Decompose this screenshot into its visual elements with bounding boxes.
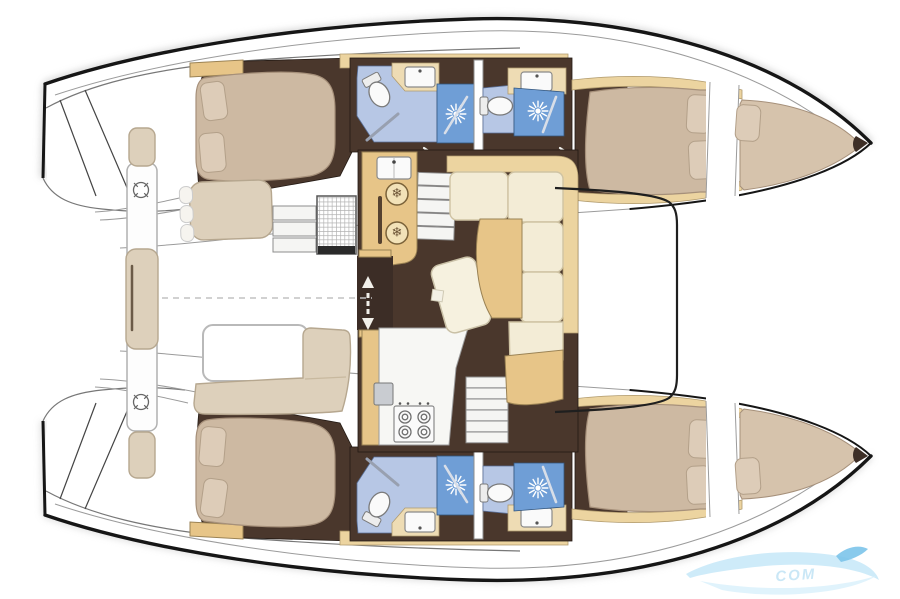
snowflake-fridge-icon: ❄ <box>392 187 403 202</box>
faucet-dot <box>535 74 538 77</box>
bench-roll-cushion <box>180 205 194 222</box>
cockpit-bench-top <box>179 180 273 242</box>
cockpit-locker-steps <box>273 206 316 252</box>
door-frame <box>359 250 391 257</box>
door-panel <box>357 256 393 330</box>
bed-pillow <box>735 104 761 142</box>
cockpit-table-white <box>203 325 308 381</box>
sliding-door <box>357 250 393 337</box>
faucet-dot <box>418 69 421 72</box>
bench-roll-cushion <box>180 224 194 241</box>
sofa-cushion <box>520 272 563 322</box>
fridge-lid: ❄ <box>386 183 408 205</box>
toilet-right <box>480 97 513 115</box>
cockpit-table-grid <box>317 196 356 254</box>
bed-pillow <box>199 81 228 122</box>
winch-icon <box>134 395 149 410</box>
faucet-dot <box>392 160 396 164</box>
snowflake-fridge-icon: ❄ <box>392 226 403 241</box>
table-grid-edge <box>318 246 355 254</box>
catamaran-floor-plan: ❄ ❄ <box>0 0 900 599</box>
winch-icon <box>134 183 149 198</box>
table-support <box>431 289 443 301</box>
helm-pad-bottom <box>129 432 155 478</box>
aft-cabin-top <box>190 58 352 196</box>
fridge-handle <box>378 196 382 244</box>
cooktop-stove <box>394 402 434 442</box>
fridge-lid: ❄ <box>386 222 408 244</box>
helm-platform <box>126 128 158 478</box>
kitchen-sink <box>374 383 393 405</box>
fwd-bulkhead-gap <box>706 80 739 202</box>
transom-top-edge <box>43 84 45 178</box>
sofa-cushion <box>520 222 563 272</box>
bathrooms-top <box>340 54 583 164</box>
nav-seat <box>505 350 563 405</box>
watermark-text: COM <box>775 566 817 586</box>
bench-roll-cushion <box>179 186 193 203</box>
bed-pillow <box>198 132 226 173</box>
sofa-cushion <box>508 172 563 222</box>
helm-pad-top <box>129 128 155 166</box>
wave-watermark-icon: COM <box>686 547 879 595</box>
fwd-cabin-top <box>572 76 868 203</box>
sofa-cushion <box>450 172 508 220</box>
companionway-steps-bottom <box>466 377 508 443</box>
